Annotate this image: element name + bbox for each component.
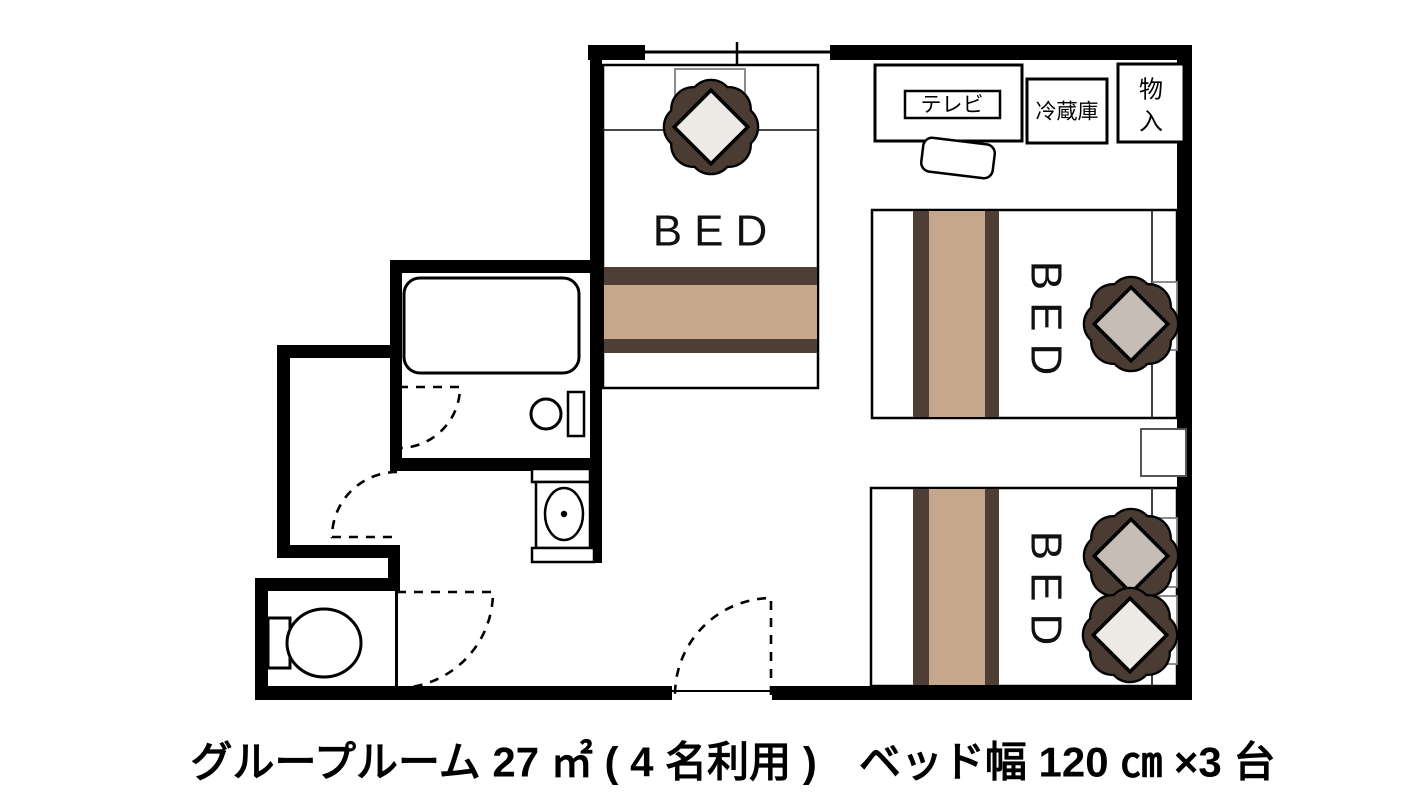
wall-closet-top (277, 345, 402, 358)
wall-toilet-right-thin (395, 591, 398, 686)
bed-1-runner-dark-bottom (604, 339, 817, 353)
fridge-label: 冷蔵庫 (1036, 101, 1099, 124)
bed-2-runner-dark-right (985, 211, 999, 417)
tv-label: テレビ (921, 94, 984, 117)
bathroom (404, 278, 584, 436)
bed-1-label: BED (653, 207, 779, 256)
bed-3-runner-dark-right (985, 489, 999, 685)
storage-label-line1: 物 (1139, 77, 1163, 104)
bed-2-label: BED (1022, 261, 1071, 387)
wall-top-right (830, 45, 1192, 60)
closet-door-arc (332, 472, 397, 537)
desk-area: テレビ 冷蔵庫 物 入 (875, 64, 1184, 179)
cushion-bed-2 (1085, 278, 1177, 370)
washbasin-drain (561, 511, 567, 517)
bed-2-runner-tan (929, 211, 985, 417)
cushion-bed-1 (665, 81, 757, 173)
toilet-door-arc (397, 592, 493, 688)
bed-2-runner-dark-left (913, 211, 929, 417)
wall-closet-bottom (277, 545, 397, 558)
shower-panel (568, 392, 584, 436)
washbasin-bottom-counter (532, 548, 594, 562)
bathroom-door-arc (399, 387, 460, 448)
wall-bottom-right (772, 686, 1192, 700)
storage-label-line2: 入 (1139, 109, 1163, 136)
bed-3-runner-tan (929, 489, 985, 685)
toilet-bowl (287, 609, 361, 677)
wall-bathroom-left (390, 260, 402, 471)
washbasin (532, 469, 594, 562)
chair (920, 137, 996, 180)
bath-stool (531, 399, 561, 429)
caption: グループルーム 27 ㎡ ( 4 名利用 ) ベッド幅 120 ㎝ ×3 台 (191, 739, 1276, 786)
bed-1-runner-dark-top (604, 267, 817, 285)
nightstand (1141, 429, 1186, 476)
washbasin-top-counter (532, 469, 590, 482)
wall-bathroom-top (390, 260, 602, 273)
toilet (268, 609, 361, 677)
floor-plan: テレビ 冷蔵庫 物 入 BED BED (0, 0, 1422, 800)
wall-closet-left (277, 345, 290, 558)
wall-center-spine (590, 45, 602, 563)
entrance-door-arc (675, 598, 771, 695)
bed-3: BED (871, 488, 1177, 686)
floor-plan-page: テレビ 冷蔵庫 物 入 BED BED (0, 0, 1422, 800)
wall-toilet-left (255, 578, 268, 700)
wall-bottom-left (255, 686, 672, 700)
bed-1: BED (603, 65, 818, 388)
wall-toilet-top (255, 578, 398, 591)
cushion-bed-3-bottom (1084, 589, 1176, 681)
bed-1-runner-tan (604, 285, 817, 339)
bathtub (404, 278, 579, 373)
bed-3-runner-dark-left (913, 489, 929, 685)
bed-3-label: BED (1022, 531, 1071, 657)
bed-2: BED (872, 210, 1177, 418)
